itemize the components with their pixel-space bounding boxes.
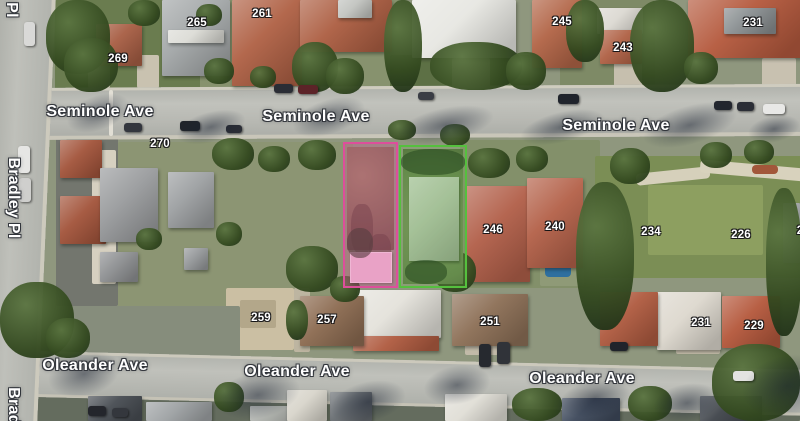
street-label: Oleander Ave <box>244 363 350 381</box>
house-number-label: 261 <box>252 8 272 20</box>
house-number-label: 245 <box>552 16 572 28</box>
house-number-label: 243 <box>613 42 633 54</box>
street-label: Seminole Ave <box>562 117 669 135</box>
house-number-label: 240 <box>545 221 565 233</box>
street-label: Seminole Ave <box>262 108 369 126</box>
house-number-label: 269 <box>108 53 128 65</box>
house-number-label: 231 <box>691 317 711 329</box>
house-number-label: 259 <box>251 312 271 324</box>
street-label: Oleander Ave <box>529 370 635 388</box>
map-labels-layer: Seminole AveSeminole AveSeminole AveOlea… <box>0 0 800 421</box>
house-number-label: 246 <box>483 224 503 236</box>
street-label: Seminole Ave <box>46 103 153 121</box>
street-label: Pl <box>2 2 20 18</box>
house-number-label: 226 <box>731 229 751 241</box>
street-label: Brad <box>4 387 22 421</box>
house-number-label: 231 <box>743 17 763 29</box>
house-number-label: 257 <box>317 314 337 326</box>
map-canvas[interactable]: Seminole AveSeminole AveSeminole AveOlea… <box>0 0 800 421</box>
house-number-label: 265 <box>187 17 207 29</box>
house-number-label: 251 <box>480 316 500 328</box>
house-number-label: 229 <box>744 320 764 332</box>
street-label: Bradley Pl <box>4 157 22 238</box>
house-number-label: 234 <box>641 226 661 238</box>
street-label: Oleander Ave <box>42 357 148 375</box>
house-number-label: 270 <box>150 138 170 150</box>
